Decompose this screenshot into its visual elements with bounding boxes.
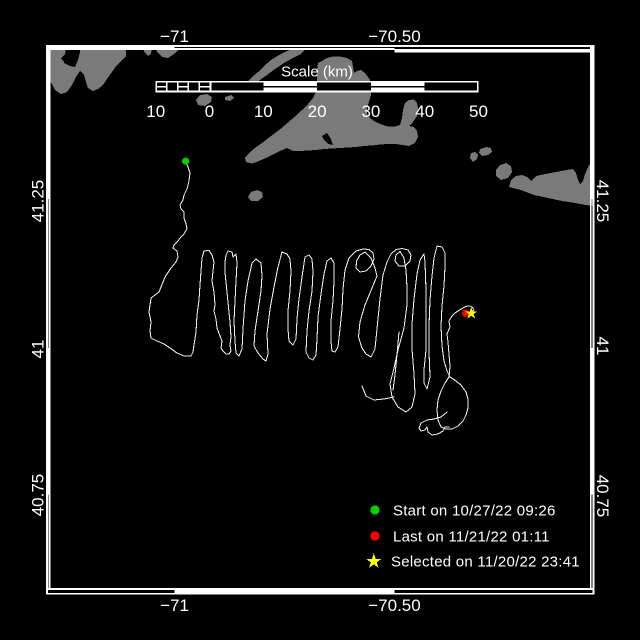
svg-text:40.75: 40.75 (593, 475, 612, 518)
svg-text:Scale (km): Scale (km) (281, 64, 353, 81)
svg-text:41: 41 (593, 337, 612, 356)
svg-text:30: 30 (361, 102, 380, 121)
svg-text:−71: −71 (160, 27, 189, 46)
svg-text:10: 10 (146, 102, 165, 121)
svg-text:10: 10 (254, 102, 273, 121)
svg-text:41.25: 41.25 (29, 180, 48, 223)
svg-text:−70.50: −70.50 (368, 596, 420, 615)
svg-text:20: 20 (308, 102, 327, 121)
svg-text:41.25: 41.25 (593, 180, 612, 223)
svg-text:−70.50: −70.50 (368, 27, 420, 46)
svg-text:Last on 11/21/22 01:11: Last on 11/21/22 01:11 (393, 529, 550, 546)
svg-text:Selected on 11/20/22 23:41: Selected on 11/20/22 23:41 (391, 554, 580, 571)
svg-text:−71: −71 (160, 596, 189, 615)
svg-text:41: 41 (29, 340, 48, 359)
svg-text:40: 40 (415, 102, 434, 121)
svg-text:0: 0 (205, 102, 214, 121)
svg-text:40.75: 40.75 (29, 474, 48, 517)
svg-text:50: 50 (469, 102, 488, 121)
svg-text:Start on 10/27/22 09:26: Start on 10/27/22 09:26 (393, 503, 556, 520)
